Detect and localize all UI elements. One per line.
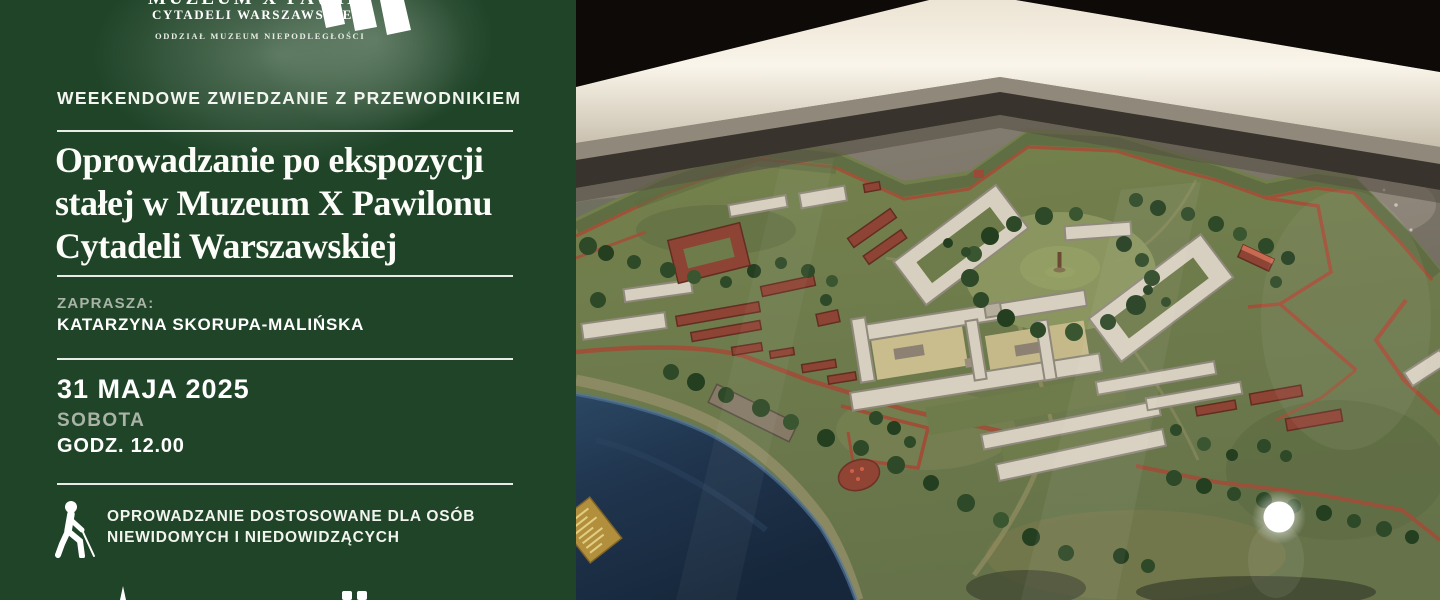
citadel-model-photo bbox=[576, 0, 1440, 600]
event-date: 31 MAJA 2025 bbox=[57, 374, 250, 405]
partner-logo-cropped-spire bbox=[112, 586, 134, 600]
invite-label: ZAPRASZA: bbox=[57, 295, 154, 312]
accessibility-note: OPROWADZANIE DOSTOSOWANE DLA OSÓB NIEWID… bbox=[107, 506, 475, 548]
light-glare bbox=[1248, 490, 1306, 598]
accessibility-note-line1: OPROWADZANIE DOSTOSOWANE DLA OSÓB bbox=[107, 506, 475, 527]
event-title: Oprowadzanie po ekspozycji stałej w Muze… bbox=[55, 139, 492, 268]
accessibility-note-line2: NIEWIDOMYCH I NIEDOWIDZĄCYCH bbox=[107, 527, 475, 548]
event-title-line3: Cytadeli Warszawskiej bbox=[55, 225, 492, 268]
divider bbox=[57, 130, 513, 132]
event-time: GODZ. 12.00 bbox=[57, 435, 185, 458]
partner-logo-cropped-dots bbox=[342, 591, 367, 600]
kicker-heading: WEEKENDOWE ZWIEDZANIE Z PRZEWODNIKIEM bbox=[57, 88, 521, 109]
event-day: SOBOTA bbox=[57, 410, 145, 432]
guide-name: KATARZYNA SKORUPA-MALIŃSKA bbox=[57, 315, 364, 335]
divider bbox=[57, 275, 513, 277]
info-panel: MUZEUM X PAWILONU CYTADELI WARSZAWSKIEJ … bbox=[0, 0, 576, 600]
divider bbox=[57, 358, 513, 360]
blind-person-icon bbox=[55, 500, 101, 558]
event-title-line2: stałej w Muzeum X Pawilonu bbox=[55, 182, 492, 225]
divider bbox=[57, 483, 513, 485]
prison-window-icon bbox=[318, 0, 414, 37]
event-title-line1: Oprowadzanie po ekspozycji bbox=[55, 139, 492, 182]
event-banner: MUZEUM X PAWILONU CYTADELI WARSZAWSKIEJ … bbox=[0, 0, 1440, 600]
